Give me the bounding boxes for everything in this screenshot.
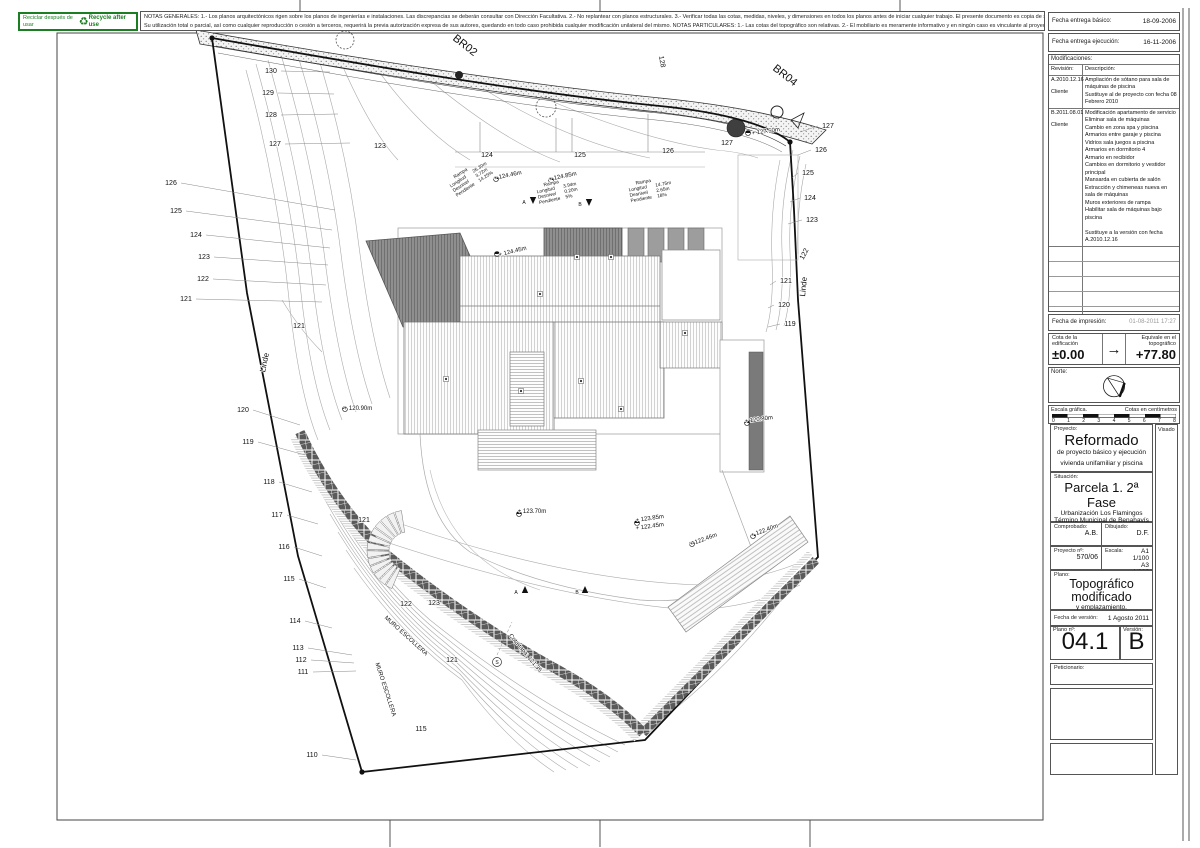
plan-label: 118 <box>263 479 274 486</box>
plan-label: 123 <box>374 143 386 150</box>
arrow-icon: → <box>1103 334 1126 364</box>
peticionario-label: Peticionario: <box>1054 665 1149 671</box>
leader-line <box>281 114 338 115</box>
plan-label: 122 <box>400 601 412 608</box>
modification-row: B.2011.08.01 Cliente Modificación aparta… <box>1049 109 1179 247</box>
notes-line-2: Su utilización total o parcial, así como… <box>144 22 1041 31</box>
plan-label: + 120.90m <box>344 406 373 412</box>
impresion-value: 01-08-2011 17:27 <box>1129 319 1176 326</box>
revision-description: Modificación apartamento de servicio Eli… <box>1083 109 1179 246</box>
plan-label: 115 <box>415 726 426 733</box>
plan-label: 115 <box>283 576 294 583</box>
plano-num-box: Plano nº: 04.1 <box>1050 626 1120 660</box>
fecha-basico-value: 18-09-2006 <box>1143 18 1176 25</box>
situacion-title: Parcela 1. 2ª Fase <box>1054 480 1149 510</box>
plan-label: 113 <box>292 645 303 652</box>
plano-num-value: 04.1 <box>1053 630 1117 654</box>
plan-label: + 124.85m <box>548 171 577 183</box>
escala-grafica-label: Escala gráfica. <box>1051 407 1087 414</box>
impresion-box: Fecha de impresión: 01-08-2011 17:27 <box>1048 314 1180 331</box>
version-value: B <box>1123 630 1150 654</box>
plan-label: A <box>514 590 518 596</box>
plan-label: 124 <box>481 152 493 159</box>
ramp-table: RampaLongitud26.30mDesnivel3.72mPendient… <box>446 156 495 199</box>
fecha-ejecucion-label: Fecha entrega ejecución: <box>1052 39 1119 46</box>
plan-label: 125 <box>802 170 814 177</box>
proyecto-box: Proyecto: Reformado de proyecto básico y… <box>1050 424 1153 472</box>
leader-line <box>253 410 300 425</box>
empty-revision-row <box>1049 262 1179 277</box>
empty-box <box>1050 743 1153 775</box>
plan-label: + 122.46m <box>689 532 718 547</box>
recycle-text-es: Reciclar después de usar <box>23 15 79 29</box>
plan-label: A <box>522 200 526 206</box>
leader-line <box>213 279 326 285</box>
plan-label: 122 <box>799 247 811 261</box>
hatched-roof <box>660 322 722 368</box>
cota-box: Cota de la edificación ±0.00 → Equivale … <box>1048 333 1180 365</box>
plan-label: 126 <box>662 148 674 155</box>
comprobado-value: A.B. <box>1054 530 1098 537</box>
general-notes: NOTAS GENERALES: 1.- Los planos arquitec… <box>140 11 1045 31</box>
fecha-basico-label: Fecha entrega básico: <box>1052 18 1111 25</box>
revision-author: Cliente <box>1051 122 1080 128</box>
plan-label: BR04 <box>770 62 799 88</box>
plan-label: BR02 <box>450 32 479 58</box>
escala-a1: A1 1/100 <box>1126 548 1149 562</box>
leader-line <box>768 324 780 327</box>
modification-row: A.2010.12.16 Cliente Ampliación de sótan… <box>1049 76 1179 109</box>
survey-point-icon <box>455 71 463 79</box>
plan-label: 126 <box>815 147 827 154</box>
revision-description: Ampliación de sótano para sala de máquin… <box>1083 76 1179 108</box>
situacion-box: Situación: Parcela 1. 2ª Fase Urbanizaci… <box>1050 472 1153 522</box>
plan-label: 121 <box>293 323 305 330</box>
version-box: Versión: B <box>1120 626 1153 660</box>
empty-revision-row <box>1049 277 1179 292</box>
revision-id: B.2011.08.01 <box>1051 110 1080 116</box>
leader-line <box>770 281 776 285</box>
plan-label: Linde <box>798 276 809 297</box>
fecha-version-value: 1 Agosto 2011 <box>1108 615 1149 622</box>
recycle-banner: Reciclar después de usar ♻ Recycle after… <box>18 12 138 31</box>
plan-label: B <box>575 590 579 596</box>
empty-revision-row <box>1049 292 1179 307</box>
leader-line <box>181 183 335 210</box>
leader-line <box>206 235 330 248</box>
modifications-box: Modificaciones: Revisión: Descripción: A… <box>1048 54 1180 312</box>
plan-label: 121 <box>358 517 370 524</box>
ramp-table: RampaLongitud14.75mDesnivel2.65mPendient… <box>627 175 673 205</box>
situacion-line1: Urbanización Los Flamingos <box>1054 510 1149 517</box>
north-compass-icon <box>1097 374 1131 400</box>
plan-label: 124 <box>804 195 816 202</box>
retaining-wall <box>749 352 763 470</box>
leader-line <box>186 211 332 230</box>
plan-label: 123 <box>806 217 818 224</box>
plan-label: 126 <box>165 180 177 187</box>
leader-line <box>792 173 798 178</box>
plan-label: 112 <box>295 657 306 664</box>
dibujado-box: Dibujado: D.F. <box>1101 522 1153 546</box>
plan-label: Linde <box>258 351 271 373</box>
modifications-title: Modificaciones: <box>1049 55 1179 65</box>
leader-line <box>299 579 326 588</box>
stair <box>478 430 596 470</box>
plano-box: Plano: Topográfico modificado y emplazam… <box>1050 570 1153 610</box>
plan-label: 116 <box>278 544 289 551</box>
proyecto-sub1: de proyecto básico y ejecución <box>1054 449 1149 456</box>
descripcion-header: Descripción: <box>1083 65 1179 75</box>
plano-title1: Topográfico <box>1069 577 1134 591</box>
leader-line <box>214 257 328 265</box>
hatched-roof <box>554 322 664 418</box>
plano-title2: modificado <box>1071 590 1131 604</box>
plan-label: 121 <box>180 296 192 303</box>
leader-line <box>285 143 350 144</box>
leader-line <box>308 648 352 655</box>
cota-label: Cota de la edificación <box>1052 335 1099 347</box>
survey-point-icon <box>771 106 783 118</box>
cota-value: ±0.00 <box>1052 347 1099 362</box>
plan-label: 110 <box>306 752 317 759</box>
empty-box <box>1050 688 1153 740</box>
site-plan: RampaLongitud26.30mDesnivel3.72mPendient… <box>0 0 1200 848</box>
plan-label: 125 <box>574 152 586 159</box>
section-arrow-icon <box>586 199 592 206</box>
equivale-label: Equivale en el topográfico <box>1129 335 1176 347</box>
plan-label: + 123.70m <box>518 509 547 515</box>
fecha-basico-box: Fecha entrega básico: 18-09-2006 <box>1048 12 1180 31</box>
revision-author: Cliente <box>1051 89 1080 95</box>
proyecto-num-box: Proyecto nº: 570/06 <box>1050 546 1102 570</box>
notes-line-1: NOTAS GENERALES: 1.- Los planos arquitec… <box>144 13 1041 22</box>
tree-icon <box>336 31 354 49</box>
plan-label: 127 <box>721 140 733 147</box>
house <box>366 114 798 472</box>
revision-header: Revisión: <box>1049 65 1083 75</box>
fecha-ejecucion-box: Fecha entrega ejecución: 16-11-2006 <box>1048 33 1180 52</box>
plan-label: 125 <box>170 208 182 215</box>
section-arrow-icon <box>582 586 588 593</box>
tree-icon <box>727 119 745 137</box>
leader-line <box>798 150 811 155</box>
drawing-sheet: { "recycle": {"left": "Reciclar después … <box>0 0 1200 848</box>
equivale-value: +77.80 <box>1129 347 1176 362</box>
leader-line <box>313 671 356 672</box>
leader-line <box>278 93 334 94</box>
proyecto-num-value: 570/06 <box>1054 554 1098 561</box>
empty-revision-row <box>1049 247 1179 262</box>
leader-line <box>311 660 354 663</box>
recycle-icon: ♻ <box>79 15 89 28</box>
plan-label: 127 <box>822 123 834 130</box>
section-arrow-icon <box>522 586 528 593</box>
plan-label: 123 <box>428 600 440 607</box>
plan-label: B <box>578 202 582 208</box>
fecha-ejecucion-value: 16-11-2006 <box>1143 39 1176 46</box>
escala-label: Escala: <box>1105 548 1123 568</box>
fecha-version-label: Fecha de versión: <box>1054 615 1098 621</box>
plan-label: 129 <box>262 90 274 97</box>
plan-label: 122 <box>197 276 209 283</box>
recycle-text-en: Recycle after use <box>89 15 133 29</box>
plan-label: 114 <box>289 618 300 625</box>
revision-id: A.2010.12.16 <box>1051 77 1080 83</box>
plan-label: 119 <box>784 321 795 328</box>
dibujado-value: D.F. <box>1105 530 1149 537</box>
leader-line <box>196 299 322 302</box>
plan-label: 120 <box>237 407 249 414</box>
impresion-label: Fecha de impresión: <box>1052 319 1106 326</box>
plan-label: 130 <box>265 68 277 75</box>
leader-line <box>322 755 356 760</box>
plan-label: 121 <box>780 278 792 285</box>
road <box>196 30 826 152</box>
plan-label: 117 <box>271 512 282 519</box>
stair <box>510 352 544 426</box>
plan-label: MURO ESCOLLERA <box>383 615 429 657</box>
plan-label: 123 <box>198 254 210 261</box>
visado-box: Visado <box>1155 424 1178 775</box>
plan-label: + 124.46m <box>493 170 522 182</box>
norte-box: Norte: <box>1048 367 1180 403</box>
escala-grafica-box: Escala gráfica. Cotas en centímetros 012… <box>1048 405 1180 424</box>
proyecto-sub2: vivienda unifamiliar y piscina <box>1054 460 1149 467</box>
cotas-cm-label: Cotas en centímetros <box>1125 407 1177 414</box>
comprobado-box: Comprobado: A.B. <box>1050 522 1102 546</box>
peticionario-box: Peticionario: <box>1050 663 1153 685</box>
escala-box: Escala: A1 1/100 A3 1/200 <box>1101 546 1153 570</box>
plan-label: 111 <box>298 669 309 676</box>
plan-label: MURO ESCOLLERA <box>373 662 396 717</box>
leader-line <box>790 198 800 202</box>
plan-label: 128 <box>657 55 666 68</box>
plan-label: 127 <box>269 141 281 148</box>
plan-label: 120 <box>778 302 790 309</box>
proyecto-title: Reformado <box>1054 432 1149 449</box>
visado-label: Visado <box>1158 427 1175 433</box>
fecha-version-box: Fecha de versión: 1 Agosto 2011 <box>1050 610 1153 626</box>
plan-label: 124 <box>190 232 202 239</box>
plan-label: 128 <box>265 112 277 119</box>
plan-label: 119 <box>242 439 253 446</box>
plan-label: 121 <box>446 657 458 664</box>
section-arrow-icon <box>530 197 536 204</box>
